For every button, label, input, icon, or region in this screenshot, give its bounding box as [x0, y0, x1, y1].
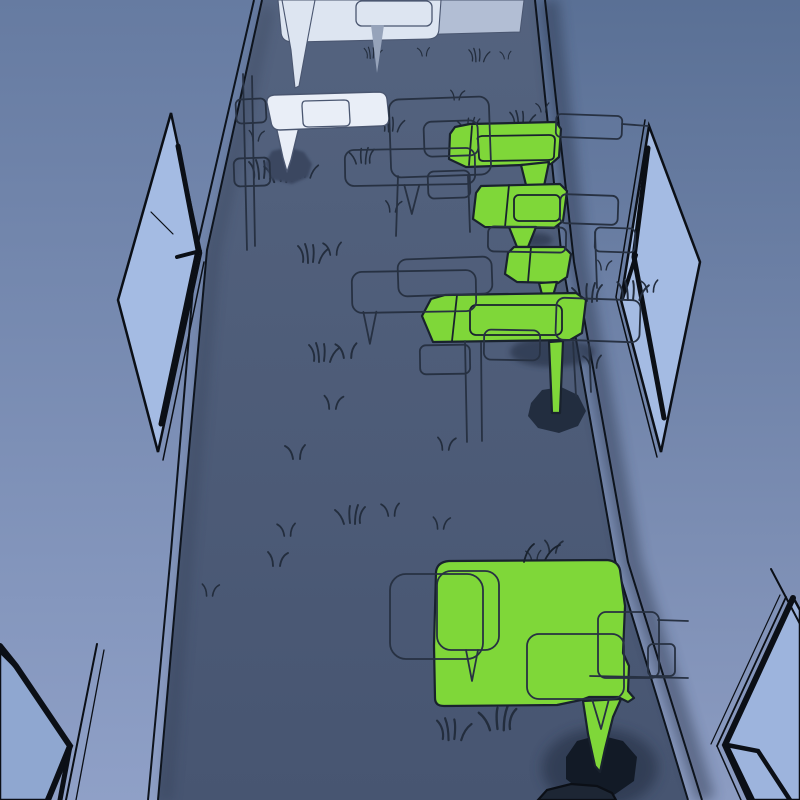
- sign-bubble: [267, 92, 389, 130]
- green-bubble-large: [434, 560, 634, 706]
- sketch-post-line: [658, 620, 688, 621]
- scene-canvas: [0, 0, 800, 800]
- sketch-post-line: [481, 343, 482, 441]
- green-sign-post: [549, 341, 563, 413]
